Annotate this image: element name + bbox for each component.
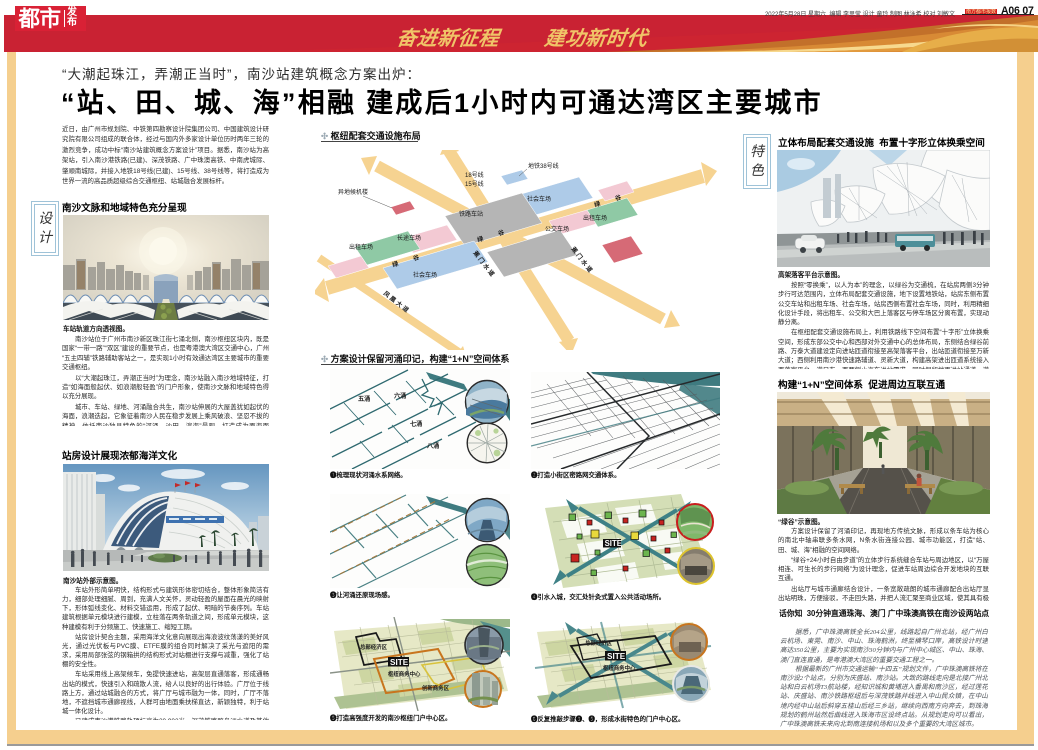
svg-text:18号线: 18号线 [465, 171, 484, 179]
svg-text:异地候机楼: 异地候机楼 [338, 188, 368, 196]
svg-text:枢纽商务中心: 枢纽商务中心 [388, 670, 421, 678]
svg-text:总部经济区: 总部经济区 [360, 643, 388, 651]
svg-text:出租车场: 出租车场 [349, 243, 373, 251]
svg-text:公交车场: 公交车场 [545, 225, 569, 233]
svg-text:五涌: 五涌 [358, 395, 370, 403]
svg-text:社会车场: 社会车场 [413, 271, 437, 279]
svg-text:七涌: 七涌 [410, 420, 422, 428]
svg-text:SITE: SITE [607, 652, 626, 661]
svg-text:SITE: SITE [390, 658, 409, 667]
svg-text:长途车场: 长途车场 [397, 234, 421, 242]
svg-text:总部经济区: 总部经济区 [585, 639, 613, 647]
svg-text:六涌: 六涌 [394, 392, 406, 400]
svg-text:创新商务区: 创新商务区 [421, 684, 450, 692]
svg-text:枢纽商务中心: 枢纽商务中心 [603, 664, 636, 672]
svg-text:铁路车站: 铁路车站 [459, 210, 483, 218]
svg-text:出租车场: 出租车场 [583, 214, 607, 222]
svg-text:SITE: SITE [605, 539, 622, 548]
svg-text:地铁38号线: 地铁38号线 [528, 162, 559, 170]
svg-text:15号线: 15号线 [465, 180, 484, 188]
svg-text:八涌: 八涌 [426, 442, 439, 450]
svg-text:社会车场: 社会车场 [527, 195, 551, 203]
